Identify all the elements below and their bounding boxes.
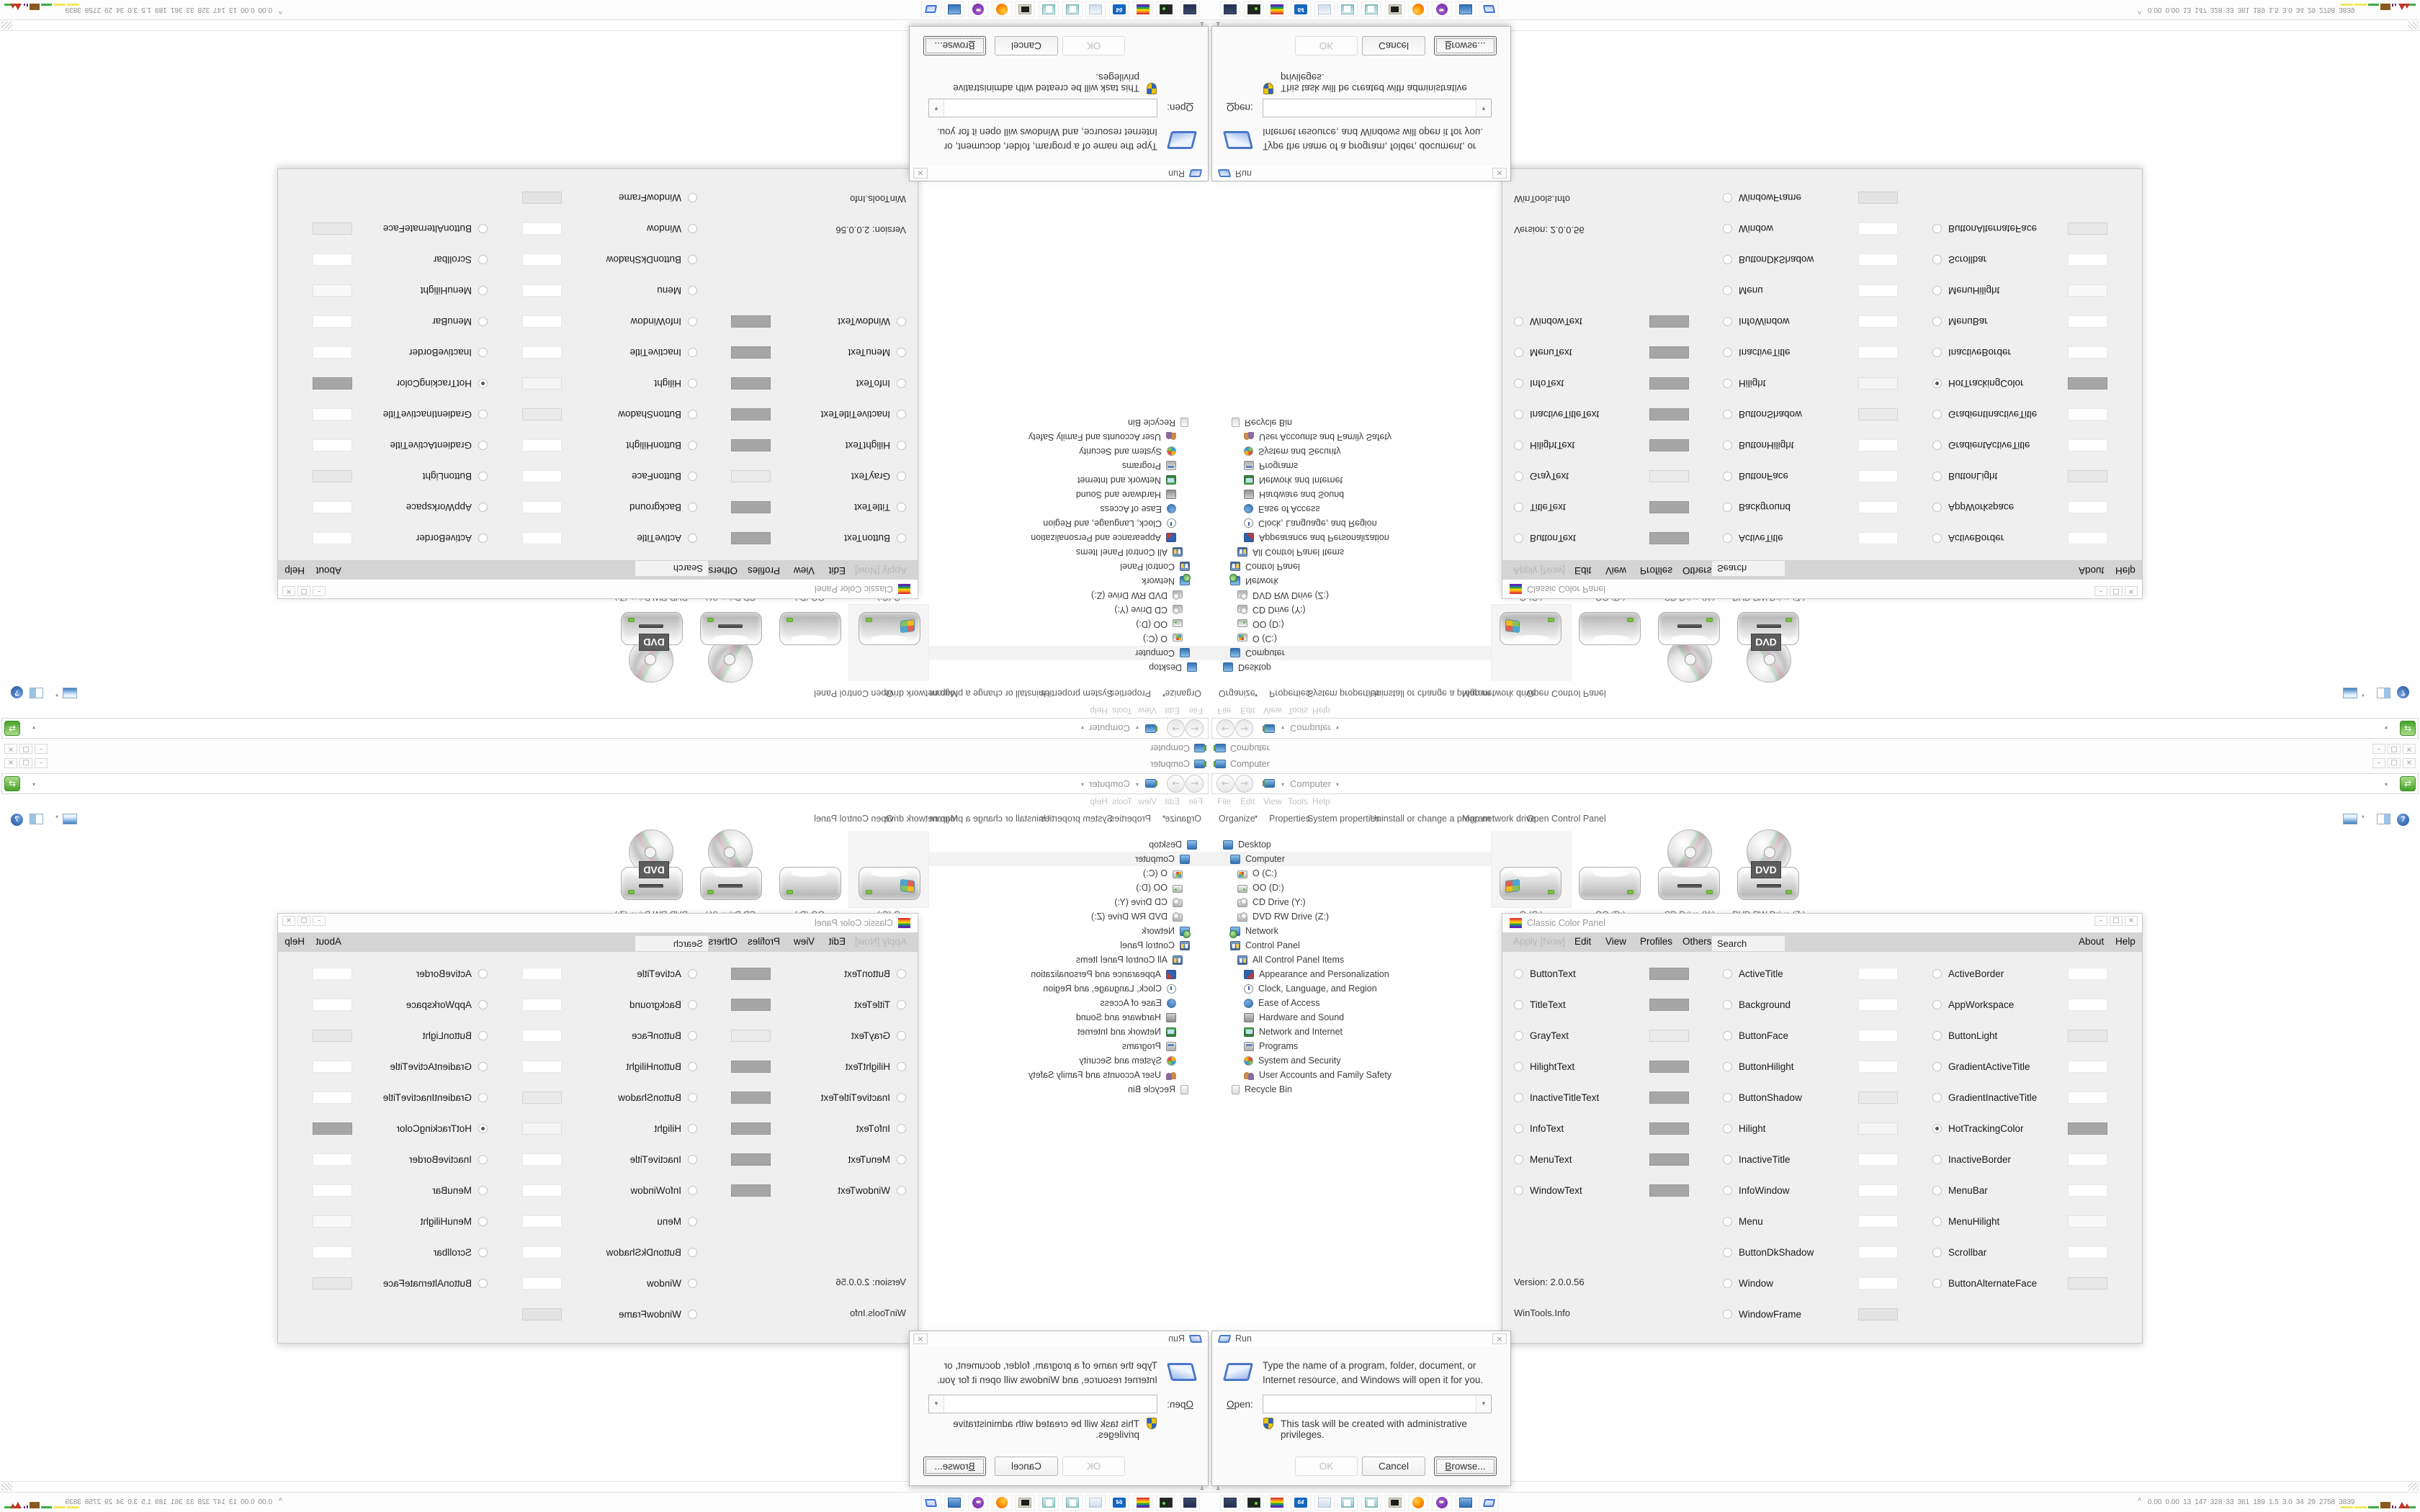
drive-item-d[interactable]: OO (D:) xyxy=(770,832,849,907)
taskbar-button-terminal[interactable] xyxy=(1385,1495,1405,1511)
help-menu[interactable]: Help xyxy=(284,936,305,947)
radio-icon[interactable] xyxy=(478,969,488,978)
radio-icon[interactable] xyxy=(1723,1062,1732,1071)
color-swatch[interactable] xyxy=(522,1030,562,1042)
radio-icon[interactable] xyxy=(1723,410,1732,419)
color-swatch[interactable] xyxy=(522,532,562,544)
color-swatch[interactable] xyxy=(522,1277,562,1290)
color-swatch[interactable] xyxy=(313,1215,352,1228)
color-row-gradientinactivetitle[interactable]: GradientInactiveTitle xyxy=(313,399,488,430)
ccp-titlebar[interactable]: Classic Color Panel – □ × xyxy=(1502,580,2142,598)
radio-icon[interactable] xyxy=(478,1093,488,1102)
color-swatch[interactable] xyxy=(1649,377,1689,390)
color-swatch[interactable] xyxy=(522,1215,562,1228)
taskbar-button-floppy64[interactable]: 64 xyxy=(1109,1495,1129,1511)
color-swatch[interactable] xyxy=(2068,346,2107,359)
edit-menu[interactable]: Edit xyxy=(1574,565,1591,576)
radio-icon[interactable] xyxy=(897,1186,906,1195)
color-swatch[interactable] xyxy=(731,1061,771,1073)
menu-view[interactable]: View xyxy=(1263,706,1282,716)
cancel-button[interactable]: Cancel xyxy=(1362,1457,1425,1476)
radio-icon[interactable] xyxy=(1932,1155,1942,1164)
color-row-titletext[interactable]: TitleText xyxy=(1514,492,1689,523)
others-menu[interactable]: Others xyxy=(1682,936,1712,947)
radio-icon[interactable] xyxy=(897,534,906,543)
radio-icon[interactable] xyxy=(1932,534,1942,543)
color-row-background[interactable]: Background xyxy=(522,989,697,1020)
radio-icon[interactable] xyxy=(1723,193,1732,202)
color-row-menu[interactable]: Menu xyxy=(522,1206,697,1237)
color-swatch[interactable] xyxy=(522,1308,562,1320)
color-row-buttontext[interactable]: ButtonText xyxy=(1514,523,1689,554)
color-swatch[interactable] xyxy=(1858,1153,1898,1166)
tree-item-clock-language[interactable]: Clock, Language, and Region xyxy=(1210,981,1492,996)
browse-button[interactable]: Browse... xyxy=(1434,1457,1497,1476)
radio-icon[interactable] xyxy=(1932,969,1942,978)
radio-icon[interactable] xyxy=(688,1186,697,1195)
color-row-buttondkshadow[interactable]: ButtonDkShadow xyxy=(1723,1237,1898,1268)
tree-item-ease-of-access[interactable]: Ease of Access xyxy=(1210,502,1492,516)
radio-icon[interactable] xyxy=(688,224,697,233)
menu-tools[interactable]: Tools xyxy=(1112,706,1132,716)
radio-icon[interactable] xyxy=(1932,1062,1942,1071)
system-properties-button[interactable]: System properties xyxy=(1040,688,1113,698)
menu-edit[interactable]: Edit xyxy=(1165,706,1180,716)
color-swatch[interactable] xyxy=(313,222,352,235)
radio-icon[interactable] xyxy=(478,286,488,295)
preview-pane-icon[interactable] xyxy=(30,688,43,698)
radio-selected-icon[interactable] xyxy=(478,1124,488,1133)
radio-icon[interactable] xyxy=(688,1000,697,1009)
properties-button[interactable]: Properties xyxy=(1110,688,1151,698)
radio-icon[interactable] xyxy=(1514,1000,1523,1009)
menu-edit[interactable]: Edit xyxy=(1165,796,1180,806)
others-menu[interactable]: Others xyxy=(708,936,738,947)
radio-icon[interactable] xyxy=(688,1031,697,1040)
color-swatch[interactable] xyxy=(1858,408,1898,420)
close-button[interactable]: × xyxy=(913,168,928,179)
radio-selected-icon[interactable] xyxy=(1932,379,1942,388)
open-control-panel-button[interactable]: Open Control Panel xyxy=(1527,688,1606,698)
drive-item-cd[interactable]: CD Drive (Y:) xyxy=(1650,832,1729,907)
radio-icon[interactable] xyxy=(1932,1186,1942,1195)
chevron-down-icon[interactable]: ▾ xyxy=(1336,781,1339,788)
taskbar-button-display-settings[interactable] xyxy=(1180,1495,1200,1511)
radio-icon[interactable] xyxy=(1723,1031,1732,1040)
color-row-scrollbar[interactable]: Scrollbar xyxy=(313,244,488,275)
radio-icon[interactable] xyxy=(478,534,488,543)
color-row-hottrackingcolor[interactable]: HotTrackingColor xyxy=(313,1113,488,1144)
chevron-down-icon[interactable]: ▾ xyxy=(1162,692,1165,698)
combo-dropdown-icon[interactable]: ▾ xyxy=(929,99,944,117)
radio-icon[interactable] xyxy=(1932,472,1942,481)
color-swatch[interactable] xyxy=(1649,408,1689,420)
taskbar-button-media-app[interactable] xyxy=(968,1,988,17)
color-swatch[interactable] xyxy=(1858,501,1898,513)
others-menu[interactable]: Others xyxy=(708,565,738,576)
color-swatch[interactable] xyxy=(731,377,771,390)
radio-icon[interactable] xyxy=(1514,317,1523,326)
color-swatch[interactable] xyxy=(313,439,352,451)
drive-item-cd[interactable]: CD Drive (Y:) xyxy=(1650,605,1729,680)
open-control-panel-button[interactable]: Open Control Panel xyxy=(1527,814,1606,824)
color-swatch[interactable] xyxy=(2068,1030,2107,1042)
color-swatch[interactable] xyxy=(731,968,771,980)
color-swatch[interactable] xyxy=(313,1092,352,1104)
color-swatch[interactable] xyxy=(1858,284,1898,297)
map-network-drive-button[interactable]: Map network drive xyxy=(1462,814,1536,824)
color-row-hilight[interactable]: Hilight xyxy=(522,368,697,399)
radio-icon[interactable] xyxy=(478,1000,488,1009)
chevron-down-icon[interactable]: ▾ xyxy=(1136,724,1139,731)
tree-item-drive-c[interactable]: O (C:) xyxy=(1210,866,1492,881)
color-row-menuhilight[interactable]: MenuHilight xyxy=(1932,1206,2107,1237)
color-row-activeborder[interactable]: ActiveBorder xyxy=(1932,523,2107,554)
minimize-button[interactable]: – xyxy=(2372,744,2385,754)
maximize-button[interactable]: □ xyxy=(297,916,310,926)
color-row-gradientinactivetitle[interactable]: GradientInactiveTitle xyxy=(313,1082,488,1113)
help-icon[interactable]: ? xyxy=(11,814,23,826)
color-row-menutext[interactable]: MenuText xyxy=(731,1144,906,1175)
tree-item-control-panel[interactable]: Control Panel xyxy=(928,559,1210,574)
radio-icon[interactable] xyxy=(1932,1093,1942,1102)
color-row-gradientactivetitle[interactable]: GradientActiveTitle xyxy=(1932,1051,2107,1082)
radio-icon[interactable] xyxy=(478,1279,488,1288)
radio-icon[interactable] xyxy=(688,472,697,481)
color-swatch[interactable] xyxy=(2068,377,2107,390)
chevron-down-icon[interactable]: ▾ xyxy=(1255,814,1258,820)
color-swatch[interactable] xyxy=(522,1092,562,1104)
color-swatch[interactable] xyxy=(731,1092,771,1104)
tree-item-hardware-sound[interactable]: Hardware and Sound xyxy=(1210,1010,1492,1025)
color-swatch[interactable] xyxy=(2068,1061,2107,1073)
radio-icon[interactable] xyxy=(688,379,697,388)
help-icon[interactable]: ? xyxy=(2397,814,2409,826)
color-swatch[interactable] xyxy=(1649,999,1689,1011)
tree-item-programs[interactable]: Programs xyxy=(1210,459,1492,473)
color-swatch[interactable] xyxy=(522,408,562,420)
open-control-panel-button[interactable]: Open Control Panel xyxy=(814,688,893,698)
radio-icon[interactable] xyxy=(897,441,906,450)
search-input[interactable]: Search xyxy=(635,561,708,576)
color-row-activetitle[interactable]: ActiveTitle xyxy=(522,958,697,989)
chevron-down-icon[interactable]: ▾ xyxy=(1281,724,1284,731)
taskbar-button-firefox[interactable] xyxy=(1408,1,1428,17)
color-swatch[interactable] xyxy=(1858,315,1898,328)
taskbar-button-color-panel[interactable] xyxy=(1267,1495,1287,1511)
menu-help[interactable]: Help xyxy=(1312,796,1330,806)
radio-icon[interactable] xyxy=(1514,410,1523,419)
color-row-menu[interactable]: Menu xyxy=(522,275,697,306)
color-row-background[interactable]: Background xyxy=(1723,989,1898,1020)
menu-view[interactable]: View xyxy=(1138,706,1157,716)
radio-icon[interactable] xyxy=(478,472,488,481)
tree-item-system-security[interactable]: System and Security xyxy=(928,444,1210,459)
others-menu[interactable]: Others xyxy=(1682,565,1712,576)
color-swatch[interactable] xyxy=(731,346,771,359)
taskbar-button-color-panel[interactable] xyxy=(1133,1495,1153,1511)
color-swatch[interactable] xyxy=(1858,1122,1898,1135)
radio-icon[interactable] xyxy=(897,969,906,978)
tree-item-system-security[interactable]: System and Security xyxy=(928,1053,1210,1068)
color-swatch[interactable] xyxy=(2068,1246,2107,1259)
color-swatch[interactable] xyxy=(731,439,771,451)
color-row-buttondkshadow[interactable]: ButtonDkShadow xyxy=(1723,244,1898,275)
taskbar-button-terminal[interactable] xyxy=(1385,1,1405,17)
color-row-menubar[interactable]: MenuBar xyxy=(313,306,488,337)
color-row-buttondkshadow[interactable]: ButtonDkShadow xyxy=(522,244,697,275)
taskbar-button-computer[interactable] xyxy=(1456,1495,1476,1511)
chevron-down-icon[interactable]: ▾ xyxy=(1162,814,1165,820)
radio-icon[interactable] xyxy=(1514,1155,1523,1164)
color-swatch[interactable] xyxy=(1649,439,1689,451)
color-row-menuhilight[interactable]: MenuHilight xyxy=(313,1206,488,1237)
color-row-window[interactable]: Window xyxy=(522,1268,697,1299)
tree-item-control-panel[interactable]: Control Panel xyxy=(1210,938,1492,953)
radio-icon[interactable] xyxy=(1723,1217,1732,1226)
color-row-titletext[interactable]: TitleText xyxy=(1514,989,1689,1020)
radio-icon[interactable] xyxy=(1932,1000,1942,1009)
color-swatch[interactable] xyxy=(731,315,771,328)
taskbar-button-notepad-1[interactable] xyxy=(1062,1495,1083,1511)
radio-icon[interactable] xyxy=(1514,472,1523,481)
color-row-menubar[interactable]: MenuBar xyxy=(313,1175,488,1206)
color-swatch[interactable] xyxy=(731,1030,771,1042)
profiles-menu[interactable]: Profiles xyxy=(748,936,780,947)
tree-item-drive-d[interactable]: OO (D:) xyxy=(1210,617,1492,631)
taskbar-button-document[interactable] xyxy=(1314,1,1335,17)
color-row-appworkspace[interactable]: AppWorkspace xyxy=(313,492,488,523)
chevron-down-icon[interactable]: ▾ xyxy=(1081,781,1084,788)
close-button[interactable]: × xyxy=(913,1333,928,1344)
color-row-infotext[interactable]: InfoText xyxy=(731,1113,906,1144)
color-row-inactivetitle[interactable]: InactiveTitle xyxy=(522,337,697,368)
help-icon[interactable]: ? xyxy=(2397,686,2409,698)
color-swatch[interactable] xyxy=(1649,532,1689,544)
color-row-appworkspace[interactable]: AppWorkspace xyxy=(313,989,488,1020)
about-menu[interactable]: About xyxy=(316,936,341,947)
run-titlebar[interactable]: Run × xyxy=(1212,1331,1510,1346)
color-row-hottrackingcolor[interactable]: HotTrackingColor xyxy=(1932,368,2107,399)
taskbar-button-computer[interactable] xyxy=(944,1495,964,1511)
taskbar-button-media-app[interactable] xyxy=(1432,1,1452,17)
tree-item-control-panel[interactable]: Control Panel xyxy=(928,938,1210,953)
color-swatch[interactable] xyxy=(1649,315,1689,328)
radio-icon[interactable] xyxy=(688,1062,697,1071)
tree-item-system-security[interactable]: System and Security xyxy=(1210,444,1492,459)
color-swatch[interactable] xyxy=(731,532,771,544)
tree-item-network[interactable]: Network xyxy=(1210,924,1492,938)
color-row-buttonlight[interactable]: ButtonLight xyxy=(1932,461,2107,492)
menu-view[interactable]: View xyxy=(1263,796,1282,806)
color-swatch[interactable] xyxy=(2068,1122,2107,1135)
drive-item-cd[interactable]: CD Drive (Y:) xyxy=(691,832,770,907)
drive-item-c[interactable]: O (C:) xyxy=(1492,832,1571,907)
tree-item-user-accounts[interactable]: User Accounts and Family Safety xyxy=(928,1068,1210,1082)
color-row-infowindow[interactable]: InfoWindow xyxy=(522,306,697,337)
tree-item-network-internet[interactable]: Network and Internet xyxy=(1210,1025,1492,1039)
color-row-windowtext[interactable]: WindowText xyxy=(1514,1175,1689,1206)
tree-item-hardware-sound[interactable]: Hardware and Sound xyxy=(928,487,1210,502)
tree-item-dvd-drive[interactable]: DVD RW Drive (Z:) xyxy=(928,909,1210,924)
color-row-buttontext[interactable]: ButtonText xyxy=(731,958,906,989)
color-row-activeborder[interactable]: ActiveBorder xyxy=(1932,958,2107,989)
taskbar-button-notepad-1[interactable] xyxy=(1062,1,1083,17)
help-menu[interactable]: Help xyxy=(2115,565,2136,576)
maximize-button[interactable]: □ xyxy=(2110,916,2123,926)
radio-icon[interactable] xyxy=(688,441,697,450)
color-row-menubar[interactable]: MenuBar xyxy=(1932,1175,2107,1206)
menu-file[interactable]: File xyxy=(1189,706,1203,716)
address-dropdown-icon[interactable]: ▾ xyxy=(32,781,35,788)
back-button[interactable]: ← xyxy=(1216,775,1234,793)
radio-icon[interactable] xyxy=(1723,224,1732,233)
color-swatch[interactable] xyxy=(313,408,352,420)
color-row-window[interactable]: Window xyxy=(1723,213,1898,244)
about-menu[interactable]: About xyxy=(316,565,341,576)
color-swatch[interactable] xyxy=(313,501,352,513)
color-swatch[interactable] xyxy=(1858,1246,1898,1259)
radio-icon[interactable] xyxy=(897,503,906,512)
menu-view[interactable]: View xyxy=(1138,796,1157,806)
color-swatch[interactable] xyxy=(731,1122,771,1135)
minimize-button[interactable]: – xyxy=(35,744,48,754)
tree-item-all-cp-items[interactable]: All Control Panel Items xyxy=(1210,953,1492,967)
radio-icon[interactable] xyxy=(1932,224,1942,233)
organize-button[interactable]: Organize xyxy=(1219,814,1255,824)
color-swatch[interactable] xyxy=(522,1184,562,1197)
close-button[interactable]: × xyxy=(282,916,295,926)
color-row-buttontext[interactable]: ButtonText xyxy=(1514,958,1689,989)
explorer-titlebar[interactable]: Computer – □ × xyxy=(0,756,1210,773)
close-button[interactable]: × xyxy=(2403,758,2416,768)
resize-grip[interactable] xyxy=(2408,22,2419,30)
radio-icon[interactable] xyxy=(478,317,488,326)
color-row-buttonshadow[interactable]: ButtonShadow xyxy=(522,399,697,430)
radio-icon[interactable] xyxy=(478,1062,488,1071)
color-swatch[interactable] xyxy=(2068,408,2107,420)
color-swatch[interactable] xyxy=(2068,1153,2107,1166)
forward-button[interactable]: → xyxy=(1235,719,1253,737)
taskbar-button-notepad-1[interactable] xyxy=(1337,1,1358,17)
ccp-titlebar[interactable]: Classic Color Panel – □ × xyxy=(1502,914,2142,932)
drive-item-d[interactable]: OO (D:) xyxy=(1571,605,1650,680)
color-row-buttonface[interactable]: ButtonFace xyxy=(1723,461,1898,492)
tree-item-network[interactable]: Network xyxy=(1210,574,1492,588)
radio-icon[interactable] xyxy=(1514,1186,1523,1195)
color-row-appworkspace[interactable]: AppWorkspace xyxy=(1932,492,2107,523)
color-swatch[interactable] xyxy=(2068,501,2107,513)
tree-item-drive-c[interactable]: O (C:) xyxy=(928,866,1210,881)
radio-icon[interactable] xyxy=(897,1155,906,1164)
color-swatch[interactable] xyxy=(522,1122,562,1135)
color-row-inactivetitletext[interactable]: InactiveTitleText xyxy=(1514,399,1689,430)
color-row-gradientinactivetitle[interactable]: GradientInactiveTitle xyxy=(1932,1082,2107,1113)
color-row-infowindow[interactable]: InfoWindow xyxy=(522,1175,697,1206)
radio-icon[interactable] xyxy=(688,1093,697,1102)
taskbar-button-run[interactable] xyxy=(921,1495,941,1511)
color-row-scrollbar[interactable]: Scrollbar xyxy=(313,1237,488,1268)
radio-icon[interactable] xyxy=(1932,255,1942,264)
close-button[interactable]: × xyxy=(1492,1333,1507,1344)
taskbar-button-notepad-2[interactable] xyxy=(1039,1495,1059,1511)
color-swatch[interactable] xyxy=(522,1246,562,1259)
drive-item-d[interactable]: OO (D:) xyxy=(1571,832,1650,907)
run-titlebar[interactable]: Run × xyxy=(910,166,1208,181)
color-row-hilighttext[interactable]: HilightText xyxy=(731,430,906,461)
radio-icon[interactable] xyxy=(1723,1000,1732,1009)
preview-pane-icon[interactable] xyxy=(2377,814,2390,824)
radio-icon[interactable] xyxy=(1723,1310,1732,1319)
color-swatch[interactable] xyxy=(2068,253,2107,266)
profiles-menu[interactable]: Profiles xyxy=(748,565,780,576)
color-swatch[interactable] xyxy=(1858,1061,1898,1073)
radio-icon[interactable] xyxy=(897,348,906,357)
color-row-graytext[interactable]: GrayText xyxy=(731,461,906,492)
tree-item-dvd-drive[interactable]: DVD RW Drive (Z:) xyxy=(1210,909,1492,924)
color-row-infowindow[interactable]: InfoWindow xyxy=(1723,1175,1898,1206)
color-row-infotext[interactable]: InfoText xyxy=(1514,368,1689,399)
close-button[interactable]: × xyxy=(1492,168,1507,179)
drive-item-c[interactable]: O (C:) xyxy=(849,832,928,907)
taskbar-button-media-app[interactable] xyxy=(968,1495,988,1511)
views-icon[interactable] xyxy=(63,688,77,698)
browse-button[interactable]: Browse... xyxy=(1434,36,1497,55)
color-row-titletext[interactable]: TitleText xyxy=(731,989,906,1020)
cancel-button[interactable]: Cancel xyxy=(995,1457,1058,1476)
close-button[interactable]: × xyxy=(2125,916,2138,926)
combo-dropdown-icon[interactable]: ▾ xyxy=(1476,1395,1491,1413)
color-row-graytext[interactable]: GrayText xyxy=(1514,461,1689,492)
color-swatch[interactable] xyxy=(313,968,352,980)
color-swatch[interactable] xyxy=(1649,1030,1689,1042)
color-row-menuhilight[interactable]: MenuHilight xyxy=(313,275,488,306)
radio-icon[interactable] xyxy=(1723,286,1732,295)
color-swatch[interactable] xyxy=(1858,470,1898,482)
radio-icon[interactable] xyxy=(688,1310,697,1319)
color-row-infotext[interactable]: InfoText xyxy=(1514,1113,1689,1144)
color-row-buttonface[interactable]: ButtonFace xyxy=(522,1020,697,1051)
run-titlebar[interactable]: Run × xyxy=(910,1331,1208,1346)
color-row-activeborder[interactable]: ActiveBorder xyxy=(313,958,488,989)
radio-icon[interactable] xyxy=(688,286,697,295)
help-icon[interactable]: ? xyxy=(11,686,23,698)
color-row-titletext[interactable]: TitleText xyxy=(731,492,906,523)
view-menu[interactable]: View xyxy=(1605,936,1626,947)
color-row-gradientactivetitle[interactable]: GradientActiveTitle xyxy=(313,430,488,461)
color-row-scrollbar[interactable]: Scrollbar xyxy=(1932,1237,2107,1268)
chevron-down-icon[interactable]: ▾ xyxy=(55,692,58,698)
drive-item-dvd[interactable]: DVD DVD RW Drive (Z:) xyxy=(611,605,691,680)
preview-pane-icon[interactable] xyxy=(30,814,43,824)
tree-item-all-cp-items[interactable]: All Control Panel Items xyxy=(928,545,1210,559)
radio-icon[interactable] xyxy=(478,1186,488,1195)
maximize-button[interactable]: □ xyxy=(2110,586,2123,596)
taskbar-button-computer[interactable] xyxy=(1456,1,1476,17)
run-titlebar[interactable]: Run × xyxy=(1212,166,1510,181)
color-swatch[interactable] xyxy=(522,470,562,482)
color-swatch[interactable] xyxy=(1649,1184,1689,1197)
view-menu[interactable]: View xyxy=(794,565,815,576)
color-swatch[interactable] xyxy=(2068,1215,2107,1228)
explorer-titlebar[interactable]: Computer – □ × xyxy=(1210,739,2420,756)
chevron-down-icon[interactable]: ▾ xyxy=(2362,692,2365,698)
color-swatch[interactable] xyxy=(313,284,352,297)
tree-item-all-cp-items[interactable]: All Control Panel Items xyxy=(928,953,1210,967)
tree-item-computer[interactable]: Computer xyxy=(1210,646,1492,660)
color-swatch[interactable] xyxy=(1649,968,1689,980)
radio-icon[interactable] xyxy=(897,1124,906,1133)
